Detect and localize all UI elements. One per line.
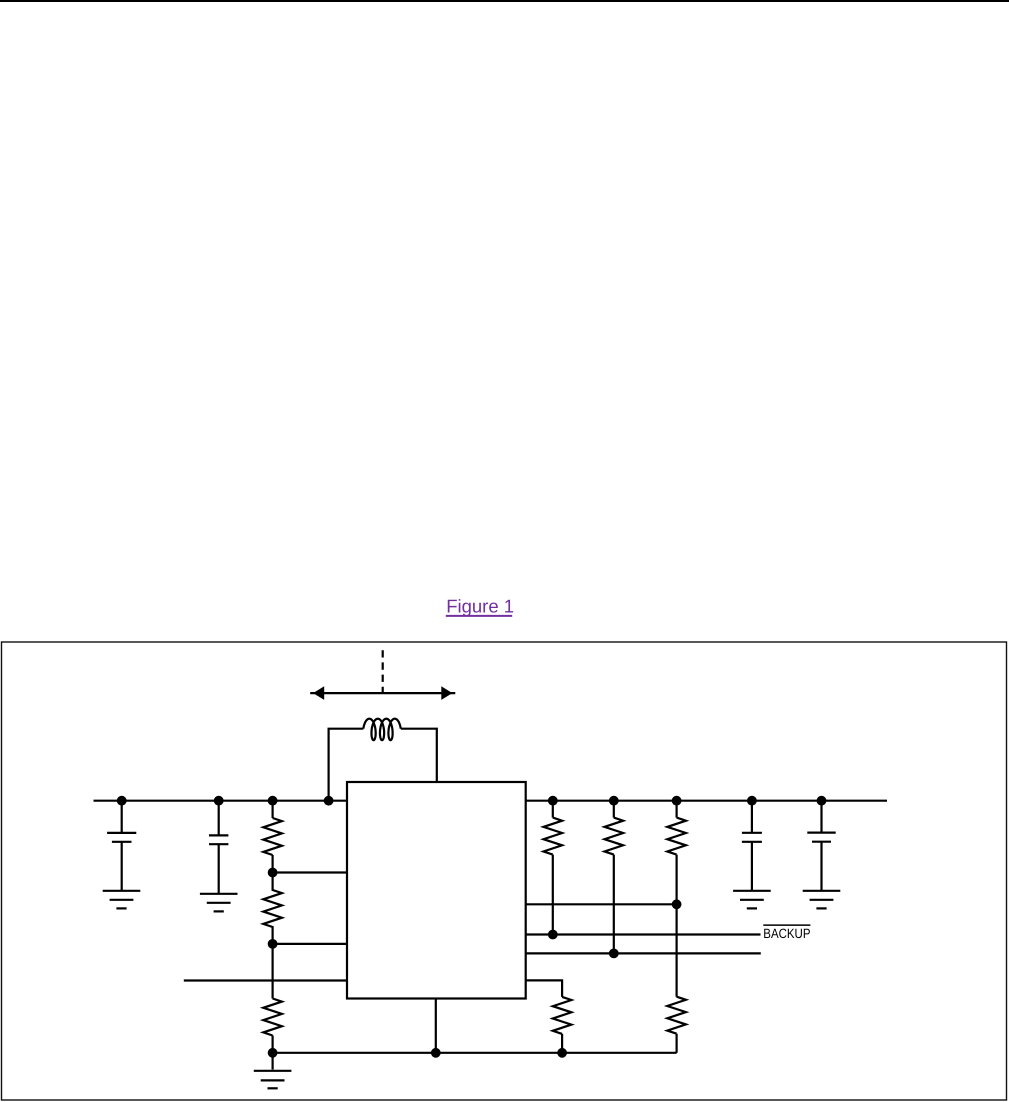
svg-text:Figure 1: Figure 1 bbox=[446, 596, 514, 617]
svg-text:BACKUP: BACKUP bbox=[763, 926, 810, 941]
